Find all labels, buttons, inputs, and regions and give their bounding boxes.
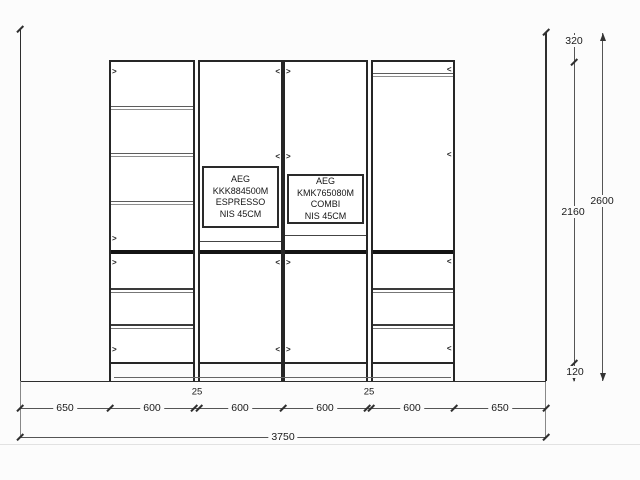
cabinet-2: AEG KKK884500M ESPRESSO NIS 45CM < < < <	[198, 60, 283, 364]
shelf-line	[111, 106, 193, 110]
dim-segment-label: 600	[313, 402, 337, 414]
hinge-arrow-icon: >	[112, 346, 117, 354]
worktop-divider-line	[373, 250, 453, 254]
hinge-arrow-icon: >	[112, 259, 117, 267]
dim-gap-label: 25	[361, 387, 378, 398]
dim-total-height-label: 2600	[587, 195, 616, 207]
dim-plinth-height-label: 120	[563, 366, 587, 378]
hinge-arrow-icon: <	[447, 151, 452, 159]
cabinet-3: AEG KMK765080M COMBI NIS 45CM > > > >	[283, 60, 368, 364]
elevation-drawing: > > > > AEG KKK884500M ESPRESSO NIS 45CM…	[0, 0, 640, 480]
dim-gap-label: 25	[189, 387, 206, 398]
dim-total-width-label: 3750	[268, 431, 297, 443]
shelf-line	[111, 201, 193, 205]
hinge-arrow-icon: >	[286, 153, 291, 161]
hinge-arrow-icon: >	[286, 346, 291, 354]
appliance-niche-combi: AEG KMK765080M COMBI NIS 45CM	[287, 174, 364, 224]
hinge-arrow-icon: <	[447, 66, 452, 74]
hinge-arrow-icon: >	[112, 68, 117, 76]
plinth-cabinet-1	[109, 364, 195, 381]
appliance-label: ESPRESSO	[216, 197, 266, 209]
dim-segment-label: 600	[140, 402, 164, 414]
tick-mark	[542, 433, 549, 440]
drawer-line	[373, 288, 453, 293]
appliance-niche-espresso: AEG KKK884500M ESPRESSO NIS 45CM	[202, 166, 279, 228]
cabinet-1: > > > >	[109, 60, 195, 364]
dim-segment-label: 650	[488, 402, 512, 414]
arrowhead-up-icon	[600, 33, 606, 41]
toe-kick-line	[114, 377, 451, 378]
hinge-arrow-icon: <	[275, 259, 280, 267]
hinge-arrow-icon: >	[286, 68, 291, 76]
shelf-line	[111, 153, 193, 157]
right-wall-line	[545, 33, 547, 381]
dimension-line-total-height	[602, 33, 603, 381]
drawer-line	[111, 324, 193, 329]
dim-segment-label: 600	[400, 402, 424, 414]
dim-segment-label: 600	[228, 402, 252, 414]
appliance-niche-size: NIS 45CM	[305, 211, 347, 223]
shelf-line	[285, 235, 366, 236]
hinge-arrow-icon: <	[447, 258, 452, 266]
arrowhead-down-icon	[600, 373, 606, 381]
dim-carcass-height-label: 2160	[558, 206, 587, 218]
appliance-model: AEG KMK765080M	[289, 176, 362, 199]
top-panel-line	[373, 73, 453, 77]
plinth-cabinet-4	[371, 364, 455, 381]
worktop-divider-line	[200, 250, 281, 254]
hinge-arrow-icon: <	[275, 68, 280, 76]
drawer-line	[111, 288, 193, 293]
cabinet-4: < < < <	[371, 60, 455, 364]
worktop-divider-line	[285, 250, 366, 254]
shelf-line	[200, 241, 281, 242]
dim-top-offset-label: 320	[562, 35, 586, 47]
appliance-niche-size: NIS 45CM	[220, 209, 262, 221]
hinge-arrow-icon: <	[447, 345, 452, 353]
hinge-arrow-icon: >	[286, 259, 291, 267]
hinge-arrow-icon: <	[275, 346, 280, 354]
plinth-cabinet-2	[198, 364, 283, 381]
appliance-label: COMBI	[311, 199, 341, 211]
drawer-line	[373, 324, 453, 329]
worktop-divider-line	[111, 250, 193, 254]
appliance-model: AEG KKK884500M	[204, 174, 277, 197]
left-wall-line	[20, 30, 22, 381]
paper-edge-line	[0, 444, 640, 445]
hinge-arrow-icon: <	[275, 153, 280, 161]
dim-segment-label: 650	[53, 402, 77, 414]
plinth-cabinet-3	[283, 364, 368, 381]
hinge-arrow-icon: >	[112, 235, 117, 243]
